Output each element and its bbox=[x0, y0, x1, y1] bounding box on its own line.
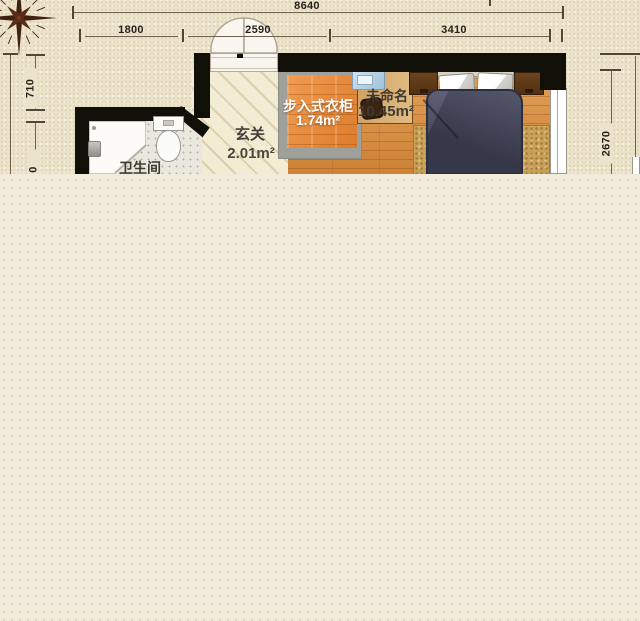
entry-label[interactable]: 玄关 bbox=[215, 123, 285, 144]
nightstand-knob bbox=[525, 89, 533, 93]
dim-total-line bbox=[73, 12, 563, 13]
bathroom-label[interactable]: 卫生间 bbox=[105, 158, 175, 174]
window-right-wall bbox=[550, 88, 567, 174]
dim-tick bbox=[549, 29, 551, 42]
dim-seg2-line bbox=[188, 36, 327, 37]
duvet-fold bbox=[423, 99, 459, 139]
wall-bathroom-left bbox=[75, 107, 89, 174]
dim-seg2-label: 2590 bbox=[228, 24, 288, 36]
dim-left-upper-label: 710 bbox=[25, 69, 38, 109]
dim-tick bbox=[26, 121, 45, 123]
bedroom-area-label: 10.45m² bbox=[352, 103, 420, 120]
right-edge-fragment bbox=[632, 157, 640, 174]
dim-tick bbox=[26, 109, 45, 111]
dim-tick bbox=[489, 0, 491, 6]
toilet-flush-button bbox=[163, 120, 174, 126]
dim-seg3-label: 3410 bbox=[424, 24, 484, 36]
dim-tick bbox=[329, 29, 331, 42]
dim-right-label: 2670 bbox=[601, 124, 614, 164]
dim-tick bbox=[79, 29, 81, 42]
shower-head-icon bbox=[88, 141, 101, 157]
dim-tick bbox=[561, 29, 563, 42]
dim-seg1-label: 1800 bbox=[101, 24, 161, 36]
design-canvas[interactable]: 卫生间 玄关 2.01m² 步入式衣柜 1.74m² 未命名 10.45m² 8… bbox=[0, 0, 640, 621]
dim-seg3-line bbox=[332, 36, 550, 37]
wall-top bbox=[277, 53, 541, 72]
bed-duvet[interactable] bbox=[426, 89, 523, 174]
closet-area-label: 1.74m² bbox=[284, 112, 352, 128]
dim-tick bbox=[600, 53, 628, 55]
compass-rose-icon bbox=[0, 0, 63, 62]
dim-seg1-line bbox=[85, 36, 178, 37]
dim-left-lower-label-partial: 0 bbox=[28, 150, 41, 175]
shower-drain-icon bbox=[92, 126, 96, 130]
dim-left-outer-line bbox=[10, 54, 11, 174]
dim-right-outer-line bbox=[635, 56, 636, 160]
wall-top-right-corner bbox=[540, 53, 566, 90]
nightstand-knob bbox=[420, 89, 428, 93]
entry-door-frame[interactable] bbox=[210, 53, 278, 72]
entry-area-label: 2.01m² bbox=[211, 145, 291, 162]
wall-left-jamb bbox=[194, 53, 210, 118]
dim-tick bbox=[72, 6, 74, 19]
dim-tick bbox=[182, 29, 184, 42]
laptop-screen bbox=[357, 75, 373, 85]
floor-plan-image[interactable]: 卫生间 玄关 2.01m² 步入式衣柜 1.74m² 未命名 10.45m² 8… bbox=[0, 0, 640, 174]
dim-total-label: 8640 bbox=[277, 0, 337, 12]
dim-tick bbox=[626, 53, 640, 55]
dim-tick bbox=[562, 6, 564, 19]
